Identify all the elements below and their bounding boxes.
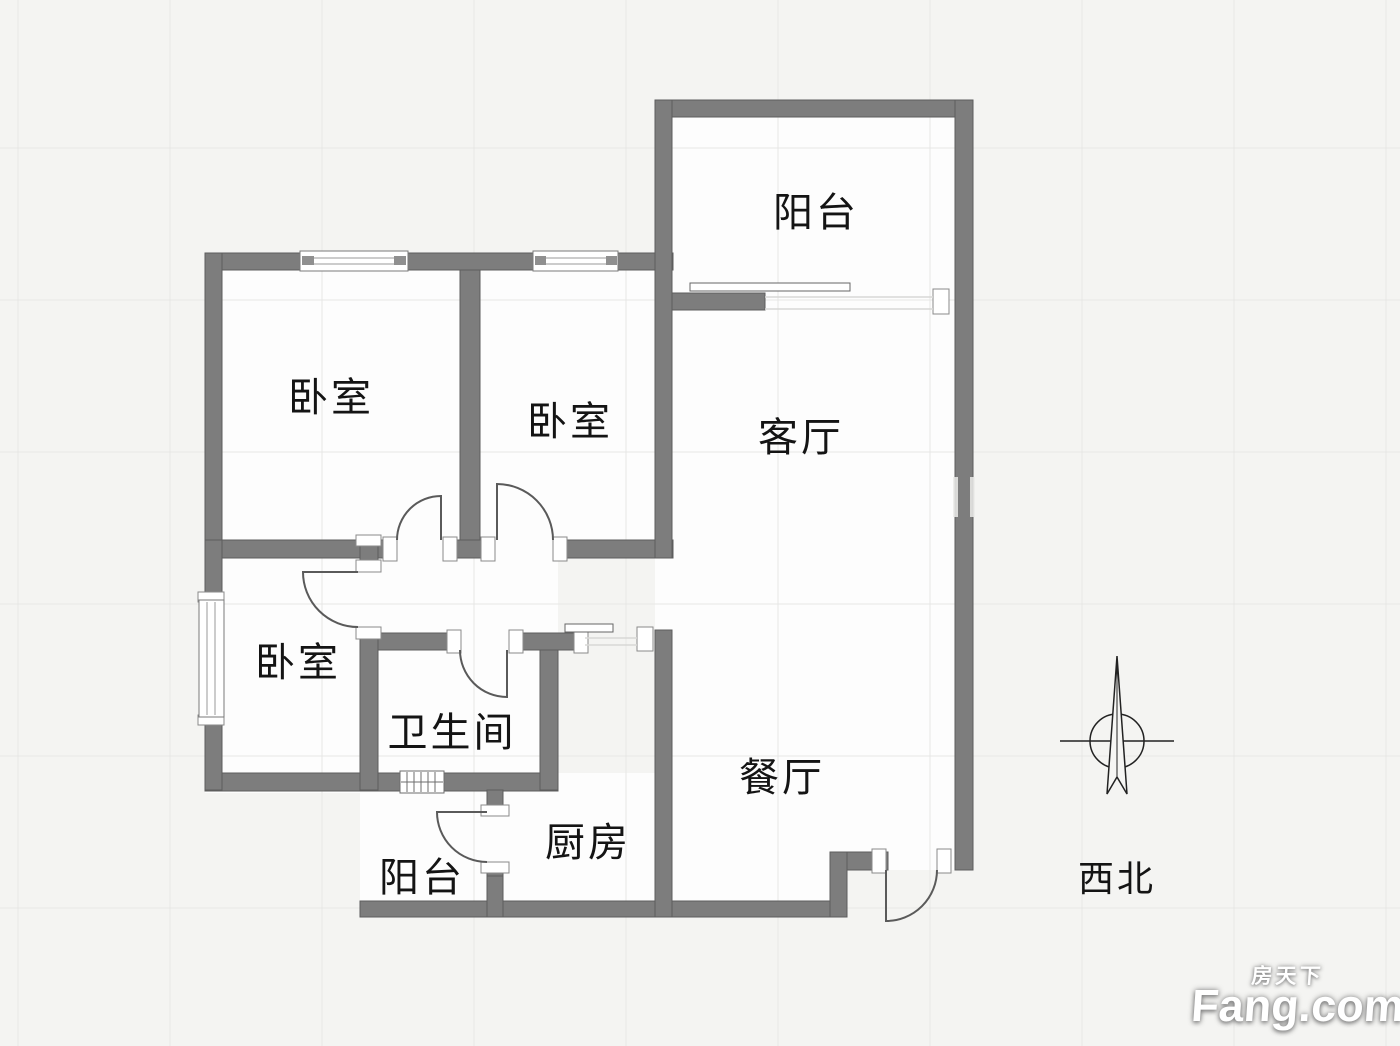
wall-bed1-bed2-divider — [460, 270, 480, 540]
label-balcony-top: 阳台 — [773, 190, 859, 235]
wall-bath-top-left — [378, 633, 447, 650]
label-compass-direction: 西北 — [1078, 859, 1156, 899]
wall-balcony-top — [655, 100, 973, 117]
label-living-room: 客厅 — [758, 415, 844, 460]
wall-left-upper — [205, 253, 222, 558]
label-bedroom-3: 卧室 — [255, 640, 341, 685]
wall-bed2-living-divider — [655, 100, 672, 558]
label-dining-room: 餐厅 — [739, 755, 825, 800]
window-bedroom3 — [199, 600, 224, 717]
window-bedroom2 — [533, 251, 618, 271]
window-bathroom-vent — [400, 771, 444, 793]
label-balcony-bottom: 阳台 — [379, 855, 465, 900]
floorplan-page: { "floorplan": { "rooms": [ {"name": "ba… — [0, 0, 1400, 1046]
wall-bottom — [360, 901, 847, 917]
label-kitchen: 厨房 — [545, 820, 631, 865]
wall-bath-bottom — [205, 773, 558, 791]
wall-bed3-right-lower — [360, 627, 378, 790]
wall-balcony-right — [487, 876, 503, 917]
wall-bath-right — [540, 650, 558, 790]
label-bedroom-1: 卧室 — [288, 375, 374, 420]
label-bathroom: 卫生间 — [388, 710, 517, 755]
wall-entry-step — [830, 852, 847, 917]
window-bedroom1 — [300, 251, 408, 271]
label-bedroom-2: 卧室 — [527, 399, 613, 444]
wall-kitchen-dining-divider — [655, 630, 672, 917]
floorplan-svg: 阳台 卧室 卧室 客厅 卧室 卫生间 餐厅 厨房 阳台 西北 — [0, 0, 1400, 1046]
